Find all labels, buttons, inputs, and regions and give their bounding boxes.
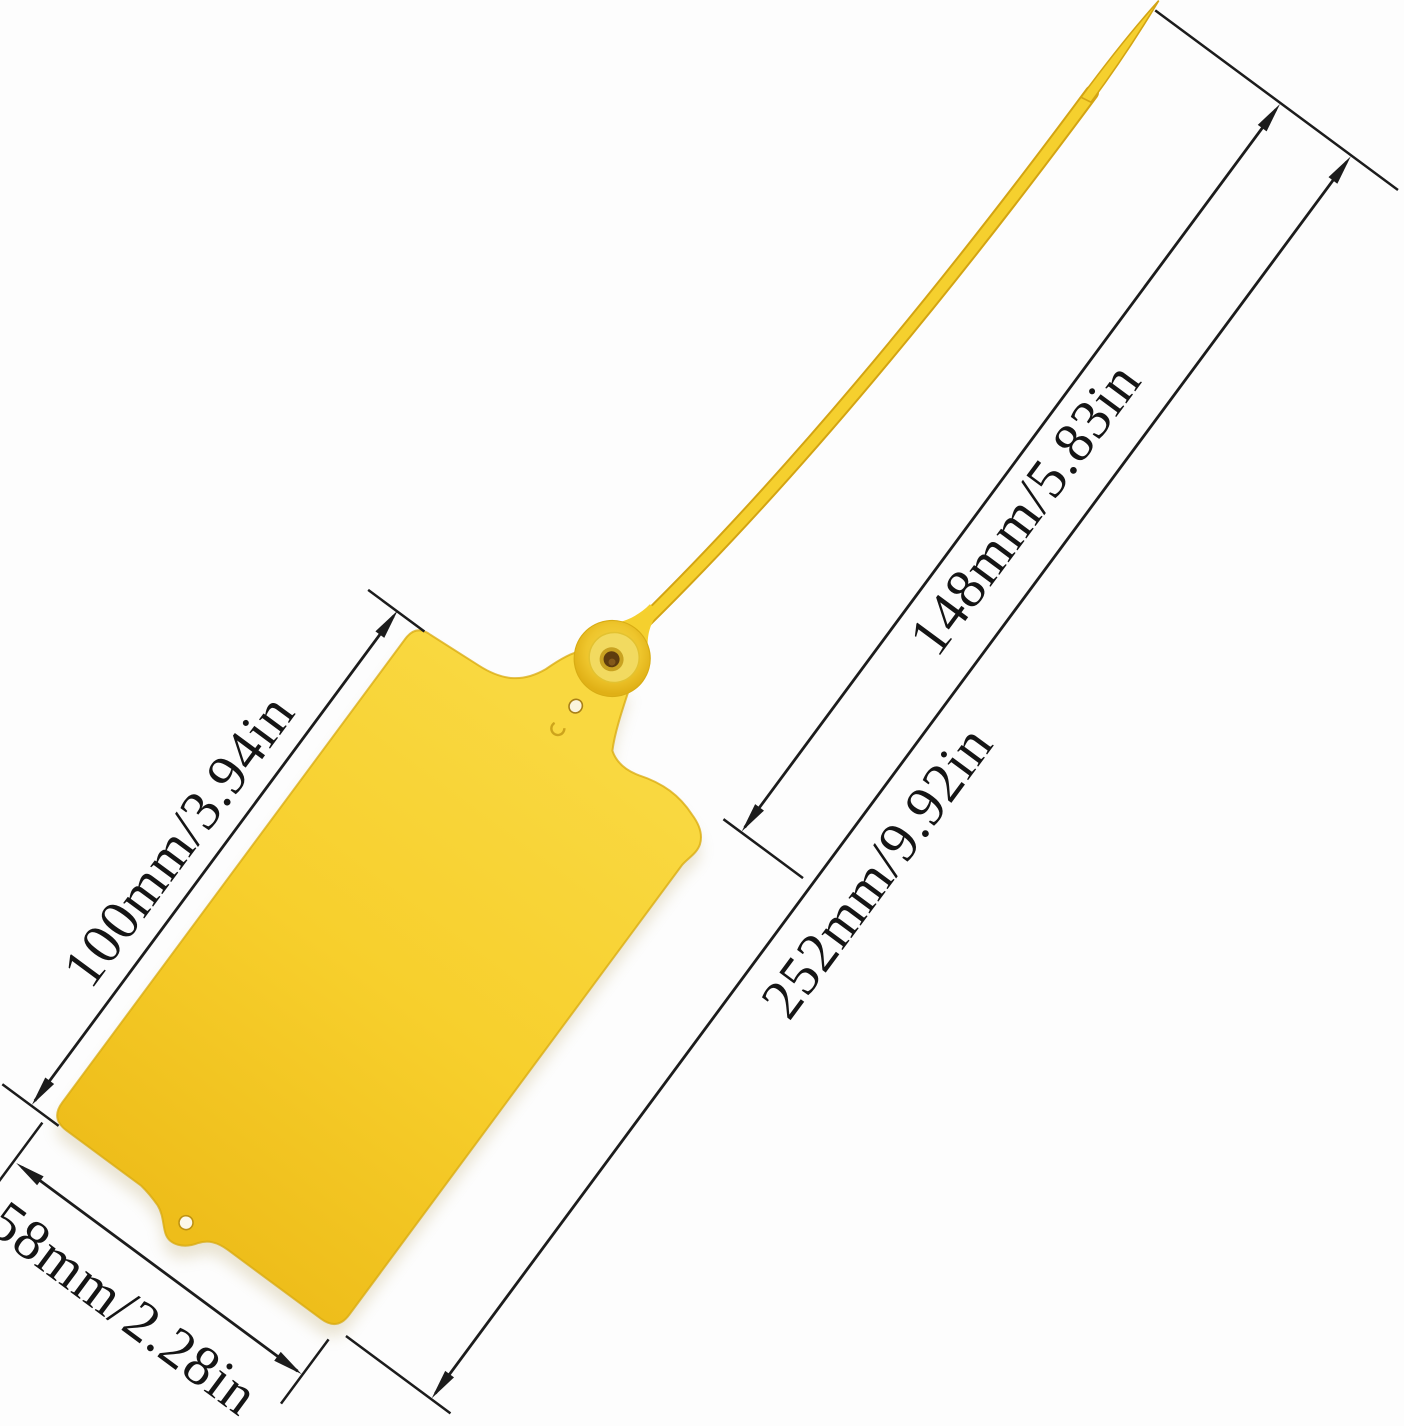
seal-strap — [598, 0, 1164, 676]
product-dimension-diagram: 148mm/5.83in 252mm/9.92in 100mm/3.94in — [0, 0, 1404, 1426]
seal-assembly: 148mm/5.83in 252mm/9.92in 100mm/3.94in — [0, 0, 1404, 1426]
arrowhead-right-icon — [274, 1352, 305, 1379]
arrowhead-up-icon — [1258, 101, 1285, 132]
arrowhead-left-icon — [13, 1159, 44, 1186]
ext-line-bottom-left-corner — [2, 1084, 58, 1126]
ext-line-tip — [1155, 10, 1398, 190]
ext-line-width-right — [281, 1339, 329, 1403]
dim-label-total-length: 252mm/9.92in — [749, 714, 1006, 1030]
arrowhead-down-icon — [27, 1077, 54, 1108]
dim-label-strap-length: 148mm/5.83in — [897, 351, 1154, 667]
dim-strap-length-line — [745, 110, 1276, 828]
strap-tip — [1081, 0, 1164, 104]
arrowhead-down-icon — [427, 1371, 454, 1402]
ext-line-plate-nose — [723, 819, 803, 878]
arrowhead-down-icon — [737, 804, 764, 835]
diagram-canvas: 148mm/5.83in 252mm/9.92in 100mm/3.94in — [0, 0, 1404, 1426]
ext-line-top-left-corner — [368, 590, 424, 632]
ext-line-bottom-corner — [346, 1336, 451, 1413]
dim-strap-length: 148mm/5.83in — [737, 101, 1334, 872]
arrowhead-up-icon — [1328, 153, 1355, 184]
